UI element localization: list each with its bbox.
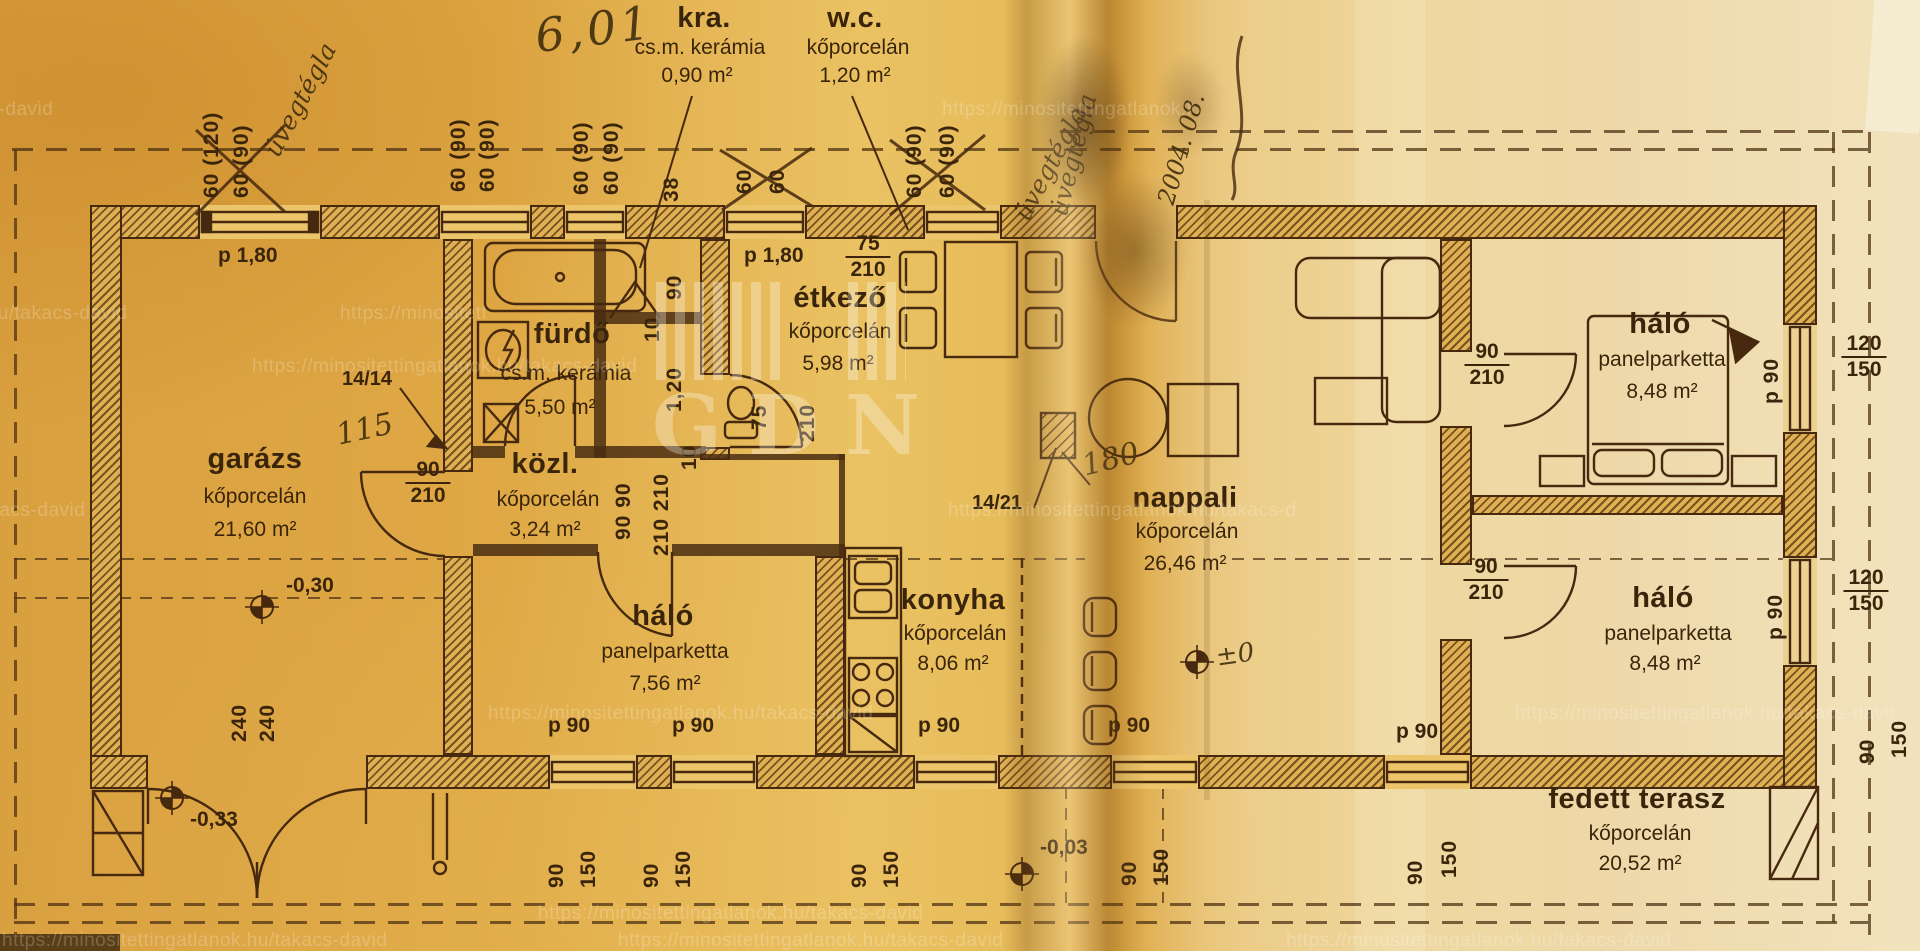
dim-top-window: 60 (90) [936, 124, 960, 198]
dim-bath: 1,20 [663, 367, 687, 412]
room-name-terrace: fedett terasz [1548, 783, 1725, 816]
partition [473, 544, 598, 556]
dim-hall: 10 [678, 445, 702, 470]
dim-terrace: 90 [1404, 860, 1428, 885]
dim-width: 90 [1463, 555, 1508, 579]
section-line [845, 558, 1085, 560]
room-area-wc: 1,20 m² [819, 64, 890, 88]
wall-bedroom-divider [1472, 495, 1783, 515]
dim-parapet: p 90 [1396, 720, 1438, 744]
wall-bedrooms [1440, 426, 1472, 565]
dim-width: 90 [1464, 340, 1509, 364]
dim-bottom-window: 150 [672, 850, 696, 888]
partition [672, 544, 845, 556]
dim-width: 90 [405, 458, 450, 482]
dim-parapet: p 90 [1108, 714, 1150, 738]
wall-right [1783, 432, 1817, 558]
room-name-hall: közl. [512, 448, 579, 481]
room-name-bedroom-top: háló [1629, 308, 1691, 341]
room-area-dining: 5,98 m² [802, 352, 873, 376]
dim-window-right-top: 120150 [1841, 332, 1886, 382]
section-line [14, 558, 90, 560]
dim-top-window: 60 (120) [200, 112, 224, 198]
plot-boundary-left [14, 150, 17, 935]
level-main-handwritten: ±0 [1214, 637, 1256, 672]
room-area-bedroom-bottom: 8,48 m² [1629, 652, 1700, 676]
dim-garage-door: 240 [256, 704, 280, 742]
room-area-kitchen: 8,06 m² [917, 652, 988, 676]
room-name-dining: étkező [793, 282, 886, 315]
wall-bottom [90, 755, 148, 789]
partition [706, 454, 845, 460]
room-name-living: nappali [1132, 482, 1237, 515]
floor-plan-scan: garázs kőporcelán 21,60 m² fürdő cs.m. k… [0, 0, 1920, 951]
room-area-garage: 21,60 m² [214, 518, 297, 542]
dim-bottom-window: 90 [848, 863, 872, 888]
plot-boundary-bottom2 [14, 921, 1868, 924]
dim-top-window: 60 (90) [903, 124, 927, 198]
room-name-bedroom-bottom: háló [1632, 582, 1694, 615]
level-garage: -0,30 [286, 574, 334, 598]
wall-bottom [756, 755, 915, 789]
dim-bottom-window: 150 [1150, 848, 1174, 886]
dim-bottom-window: 150 [577, 850, 601, 888]
room-material-hall: kőporcelán [497, 488, 600, 512]
room-name-bedroom-mid: háló [632, 600, 694, 633]
dim-bottom-window: 90 [1118, 861, 1142, 886]
dim-window-right-bottom: 120150 [1843, 566, 1888, 616]
dim-parapet: p 90 [548, 714, 590, 738]
wall-top [530, 205, 565, 239]
dim-terrace-edge: 90 [1856, 739, 1880, 764]
room-name-wc: w.c. [827, 2, 883, 35]
dim-height: 210 [845, 256, 890, 282]
dim-width: 75 [845, 232, 890, 256]
wall-bottom [998, 755, 1112, 789]
dim-height: 150 [1843, 590, 1888, 616]
section-line [1232, 558, 1832, 560]
dim-top-window: 60 [733, 169, 757, 194]
wall-top [320, 205, 440, 239]
dim-bottom-window: 90 [545, 863, 569, 888]
wall-top [1176, 205, 1785, 239]
wall-left [90, 205, 122, 789]
dim-parapet-right: p 90 [1764, 594, 1788, 640]
dim-hall-door: 90210 [405, 458, 450, 508]
wall-right [1783, 205, 1817, 325]
room-name-pantry: kra. [677, 2, 731, 35]
dim-dining-door: 75210 [845, 232, 890, 282]
room-material-wc: kőporcelán [807, 36, 910, 60]
room-area-bedroom-mid: 7,56 m² [629, 672, 700, 696]
dim-garage-window: p 1,80 [218, 244, 278, 268]
paper-corner [1865, 0, 1920, 134]
room-material-kitchen: kőporcelán [904, 622, 1007, 646]
wall-wc [700, 239, 730, 375]
projection-line [14, 597, 443, 599]
dim-dining-opening: p 1,80 [744, 244, 804, 268]
partition [473, 446, 505, 458]
wall-bedrooms [1440, 639, 1472, 755]
dim-height: 210 [1464, 364, 1509, 390]
dim-bottom-window: 90 [640, 863, 664, 888]
dim-width: 120 [1843, 566, 1888, 590]
dim-hall-doors: 90 90 [612, 482, 636, 540]
wall-right [1783, 665, 1817, 789]
room-material-living: kőporcelán [1136, 520, 1239, 544]
room-material-terrace: kőporcelán [1589, 822, 1692, 846]
dim-height: 210 [405, 482, 450, 508]
wall-bottom [366, 755, 550, 789]
ref-wall: 14/14 [342, 368, 392, 391]
room-area-hall: 3,24 m² [509, 518, 580, 542]
dim-parapet: p 90 [918, 714, 960, 738]
room-material-bedroom-mid: panelparketta [601, 640, 728, 664]
plot-boundary-right-outer [1868, 132, 1871, 940]
dim-parapet: p 90 [672, 714, 714, 738]
plot-boundary-right-inner [1832, 132, 1835, 922]
wall-bedrooms [1440, 239, 1472, 352]
dim-bath: 10 [641, 317, 665, 342]
dim-bedroom-top-door: 90210 [1464, 340, 1509, 390]
dim-top-window: 60 (90) [600, 121, 624, 195]
dim-top-window: 60 (90) [570, 121, 594, 195]
room-area-pantry: 0,90 m² [661, 64, 732, 88]
room-material-dining: kőporcelán [789, 320, 892, 344]
room-area-bath: 5,50 m² [524, 396, 595, 420]
dim-garage-door: 240 [228, 704, 252, 742]
room-material-bath: cs.m. kerámia [501, 362, 632, 386]
dim-top-window: 60 (90) [476, 118, 500, 192]
dim-terrace-edge: 150 [1888, 720, 1912, 758]
dim-wc-door: 210 [796, 404, 820, 442]
wall-bottom [636, 755, 672, 789]
wall-bottom [1198, 755, 1385, 789]
dim-height: 210 [1463, 579, 1508, 605]
dim-width: 120 [1841, 332, 1886, 356]
room-material-bedroom-top: panelparketta [1598, 348, 1725, 372]
wall-kitchen [815, 556, 845, 755]
room-name-bath: fürdő [534, 318, 611, 351]
paper-streak [1355, 0, 1425, 951]
paper-crease [1204, 200, 1210, 800]
level-walk: -0,03 [1040, 836, 1088, 860]
dim-wc-door: 75 [748, 405, 772, 430]
dim-parapet-right: p 90 [1760, 358, 1784, 404]
dim-top-window: 60 (90) [230, 124, 254, 198]
room-area-bedroom-top: 8,48 m² [1626, 380, 1697, 404]
dim-bath: 90 [663, 275, 687, 300]
section-line [122, 558, 443, 560]
dim-hall-doors: 210 210 [650, 473, 674, 556]
wall-garage [443, 239, 473, 472]
wall-top [625, 205, 725, 239]
partition [839, 454, 845, 556]
dim-bedroom-bottom-door: 90210 [1463, 555, 1508, 605]
dim-top-window: 60 [766, 169, 790, 194]
room-area-terrace: 20,52 m² [1599, 852, 1682, 876]
dim-offset: 38 [660, 177, 684, 202]
room-material-bedroom-bottom: panelparketta [1604, 622, 1731, 646]
photo-edge [0, 934, 120, 951]
dim-terrace: 150 [1438, 840, 1462, 878]
room-name-kitchen: konyha [901, 584, 1006, 617]
ref-chimney: 14/21 [972, 492, 1022, 515]
plot-boundary-bottom1 [14, 903, 1868, 906]
dim-top-window: 60 (90) [447, 118, 471, 192]
dim-bottom-window: 150 [880, 850, 904, 888]
level-garage-out: -0,33 [190, 808, 238, 832]
room-area-living: 26,46 m² [1144, 552, 1227, 576]
wall-garage [443, 556, 473, 755]
paper-edge [1892, 0, 1920, 951]
dim-height: 150 [1841, 356, 1886, 382]
room-name-garage: garázs [208, 443, 303, 476]
room-material-garage: kőporcelán [204, 485, 307, 509]
